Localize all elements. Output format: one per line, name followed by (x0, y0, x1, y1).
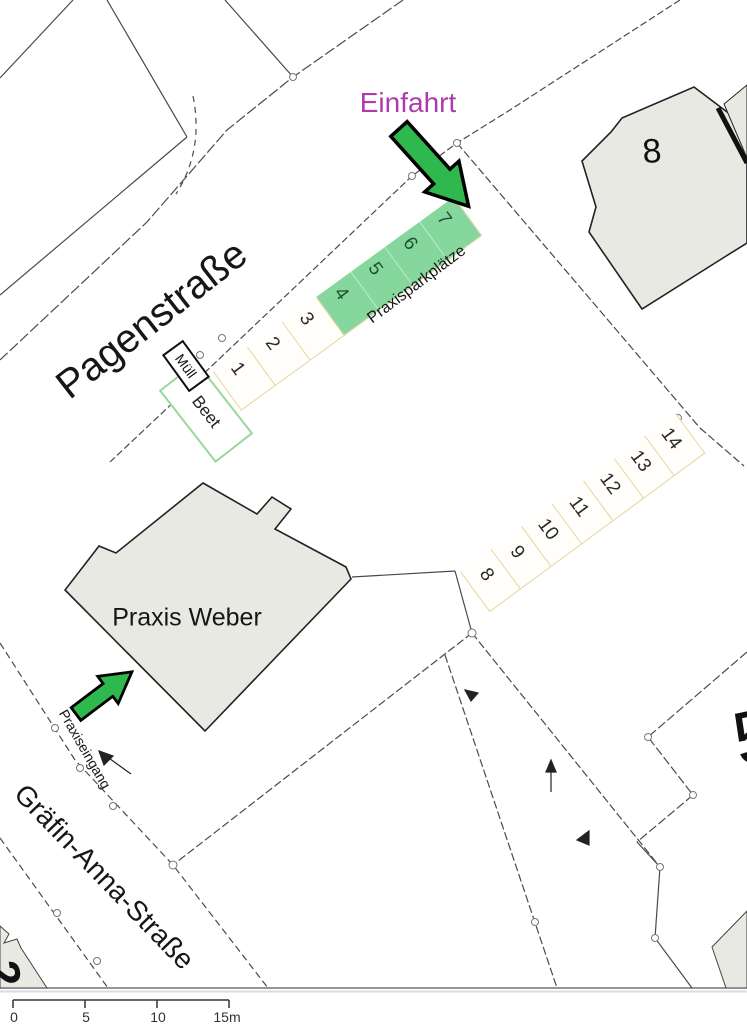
parking-spot-label: 13 (626, 447, 655, 476)
parking-spot-label: 7 (432, 209, 454, 229)
parking-spot-label: 8 (475, 565, 497, 585)
praxis-weber-label: Praxis Weber (112, 604, 262, 633)
parking-spot-label: 3 (295, 309, 317, 329)
scale-tick-10: 10 (150, 1009, 166, 1024)
parking-spot-label: 5 (364, 259, 386, 279)
scale-tick-5: 5 (82, 1009, 90, 1024)
buildings (0, 85, 747, 988)
parking-spot-label: 12 (595, 470, 624, 499)
building-bottom-right (712, 911, 747, 988)
einfahrt-label: Einfahrt (360, 87, 457, 119)
scale-bar (13, 1000, 229, 1008)
parking-spot-label: 11 (565, 493, 593, 521)
beet-label: Beet (187, 392, 224, 432)
scale-tick-15m: 15m (213, 1009, 240, 1024)
site-plan-map: 1 2 3 4 5 6 7 8 9 10 11 12 13 14 Müll Be… (0, 0, 747, 1024)
parking-spot-label: 9 (506, 542, 528, 562)
parking-spot-label: 6 (398, 234, 420, 254)
parking-spot-label: 10 (534, 515, 563, 544)
parking-spot-label: 14 (656, 425, 685, 454)
parking-spot-label: 4 (329, 284, 351, 304)
building-number-8: 8 (641, 132, 663, 172)
scale-tick-0: 0 (10, 1009, 18, 1024)
corner-arc (176, 96, 196, 194)
parking-spot-label: 1 (226, 359, 248, 379)
annotation-arrows (99, 690, 589, 845)
parking-spot-label: 2 (261, 334, 283, 354)
